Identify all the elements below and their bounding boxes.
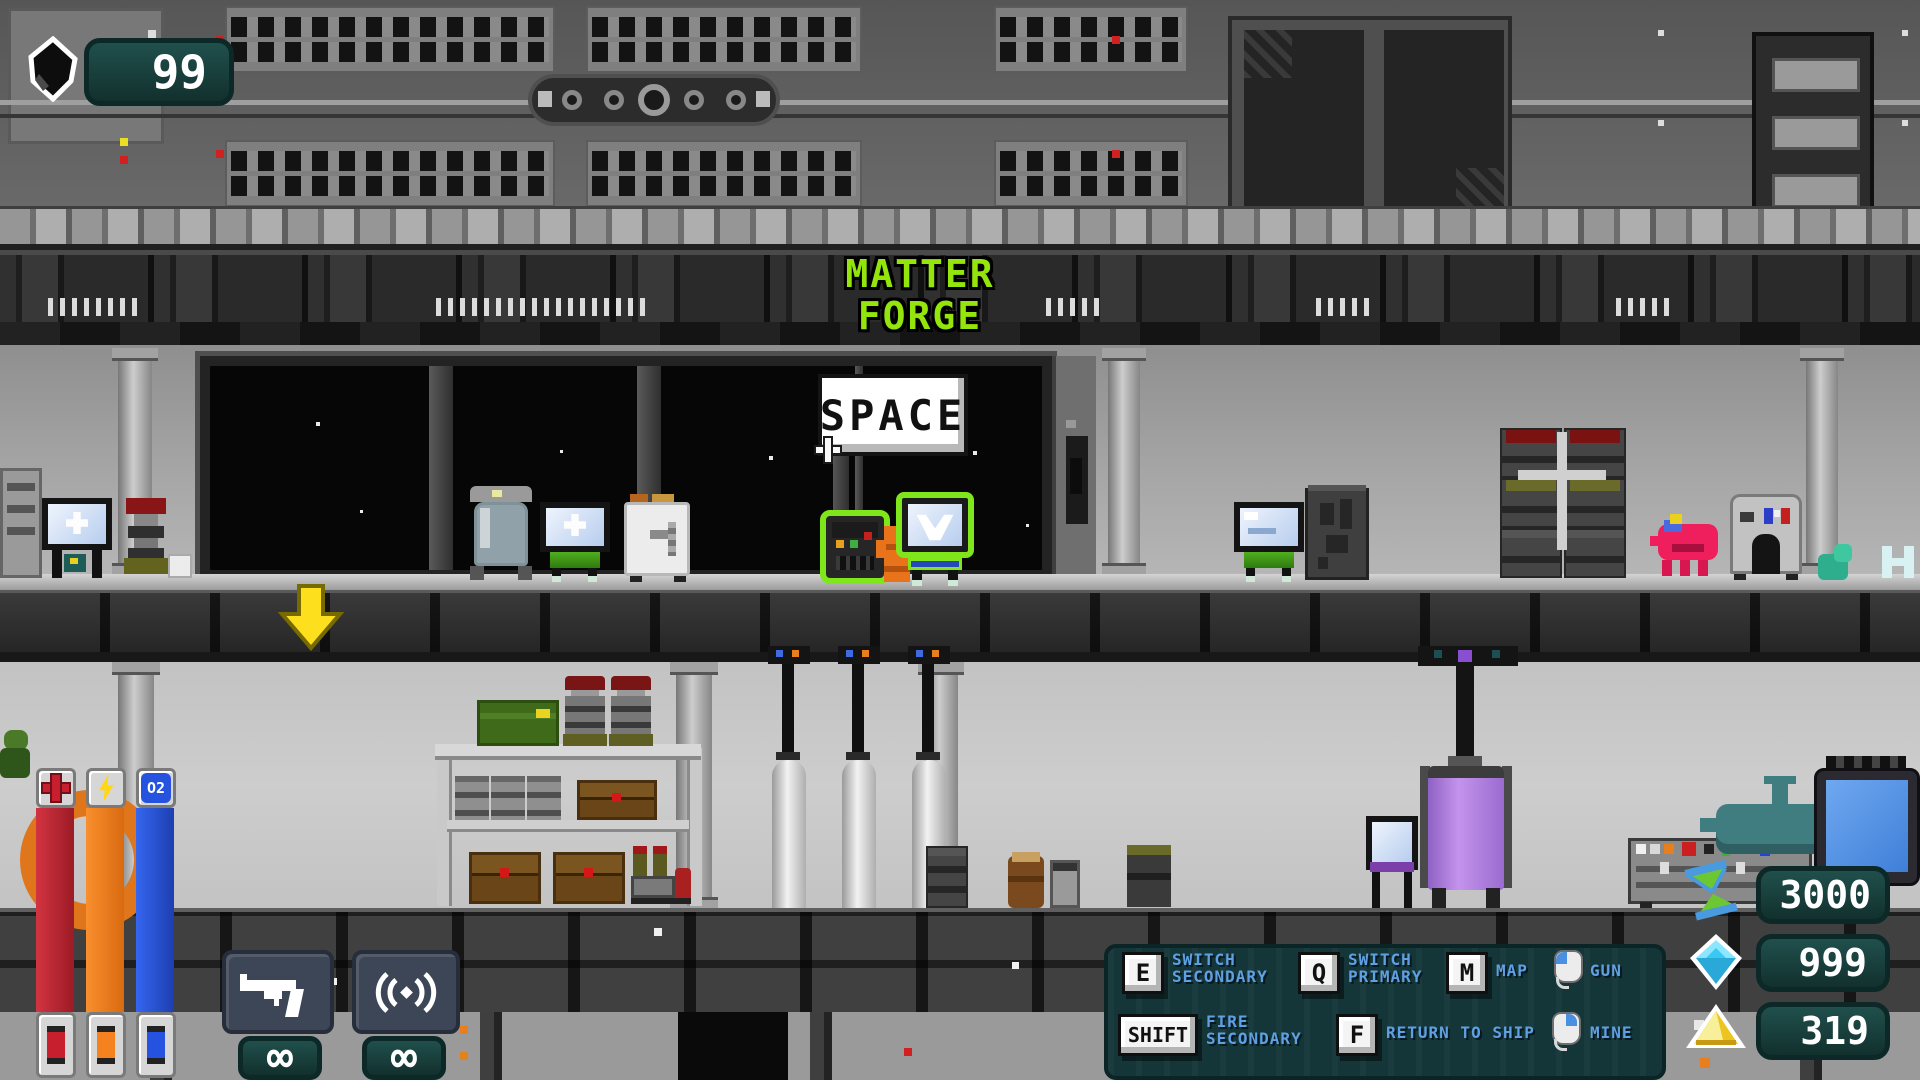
down-arrow-indicator [278, 584, 344, 654]
ammo-crate [477, 700, 559, 746]
gem-counter: 999 [1756, 934, 1890, 992]
oxygen-battery-icon [136, 1012, 176, 1078]
pillar [1108, 348, 1140, 576]
ore-counter: 99 [84, 38, 234, 106]
keycap-shift: SHIFT [1118, 1014, 1198, 1056]
ceiling-grate [1752, 32, 1874, 210]
ceiling-vent [994, 6, 1188, 73]
ore-counter-value: 99 [152, 45, 207, 99]
signal-waves-icon [374, 968, 438, 1016]
basement-doorway [678, 1012, 788, 1080]
ore-chunk-icon [26, 36, 80, 102]
cursor-crosshair [816, 438, 840, 462]
location-label-line2: FORGE [790, 294, 1050, 338]
ceiling-panel [1228, 16, 1512, 226]
energy-battery-icon [86, 1012, 126, 1078]
health-bar [36, 808, 74, 1012]
robot-mouth-grill [836, 556, 874, 570]
keycap-e: E [1122, 952, 1164, 994]
game-viewport: SPACE [0, 0, 1920, 1080]
infinity-icon: ∞ [391, 1041, 418, 1075]
airlock-frame [1052, 356, 1096, 580]
indicator-light [216, 150, 224, 158]
canister [1127, 845, 1171, 907]
pyramid-icon [1686, 1004, 1746, 1056]
hanging-rack [1616, 298, 1674, 316]
locker [1305, 488, 1369, 580]
ceiling-vent [586, 140, 862, 207]
hanging-rack [1046, 298, 1104, 316]
space-sign: SPACE [818, 374, 968, 456]
indicator-light [120, 138, 128, 146]
indicator-light [1112, 36, 1120, 44]
storage-shelf [435, 700, 701, 908]
location-label-line1: MATTER [790, 252, 1050, 296]
canister [455, 776, 489, 820]
keycap-f: F [1336, 1014, 1378, 1056]
keycap-q: Q [1298, 952, 1340, 994]
primary-weapon-slot[interactable] [222, 950, 334, 1034]
hanging-rack [436, 298, 652, 316]
energy-bolt-icon [86, 768, 126, 808]
space-sign-text: SPACE [820, 391, 966, 440]
canister [527, 776, 561, 820]
window-mullion [429, 366, 453, 570]
mouse-left-icon [1554, 950, 1581, 982]
wall-machine [0, 468, 42, 578]
hanging-rack [1316, 298, 1374, 316]
ceiling-vent [994, 140, 1188, 207]
secondary-weapon-slot[interactable] [352, 950, 460, 1034]
canister [609, 676, 653, 746]
health-battery-icon [36, 1012, 76, 1078]
health-cross-icon [36, 768, 76, 808]
diamond-icon [1688, 932, 1744, 992]
indicator-light [120, 156, 128, 164]
conveyor-device [528, 74, 780, 126]
primary-ammo: ∞ [238, 1036, 322, 1080]
oxygen-icon: O2 [136, 768, 176, 808]
jar [1050, 860, 1080, 908]
supply-chest [469, 852, 541, 904]
canister [491, 776, 525, 820]
ceiling-vent [586, 6, 862, 73]
keycap-m: M [1446, 952, 1488, 994]
canister [563, 676, 607, 746]
infinity-icon: ∞ [267, 1041, 294, 1075]
fuel-device [631, 846, 691, 904]
ceiling-vent [225, 6, 555, 73]
clay-pot [1008, 856, 1044, 908]
barrel [926, 846, 968, 908]
time-counter: 3000 [1756, 866, 1890, 924]
mouse-right-icon [1552, 1012, 1579, 1044]
secondary-ammo: ∞ [362, 1036, 446, 1080]
gold-counter: 319 [1756, 1002, 1890, 1060]
supply-chest [553, 852, 625, 904]
hanging-rack [48, 298, 144, 316]
ceiling-rail [0, 206, 1920, 250]
energy-bar [86, 808, 124, 1012]
indicator-light [1112, 150, 1120, 158]
supply-chest [577, 780, 657, 820]
pillar [1806, 348, 1838, 576]
oxygen-bar [136, 808, 174, 1012]
ceiling-vent [225, 140, 555, 207]
